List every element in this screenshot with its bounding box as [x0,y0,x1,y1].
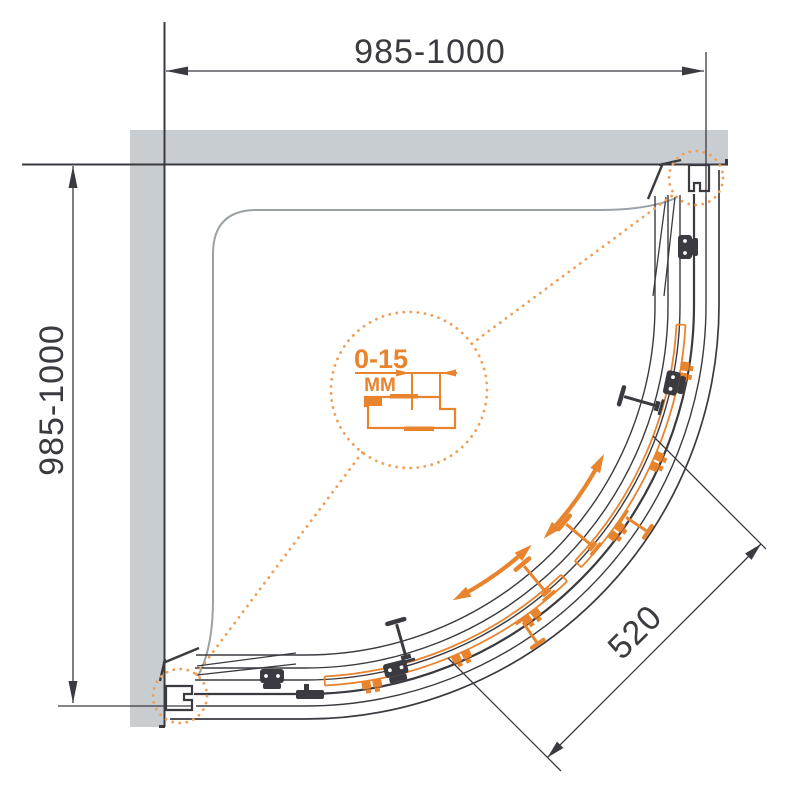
sliding-door-2 [325,575,568,686]
tray-inner-edge [198,198,676,676]
adjustment-range-value: 0-15 [354,344,408,374]
dimension-left-value: 985-1000 [33,324,71,476]
dimension-left: 985-1000 [33,166,192,706]
technical-drawing-page: 0-15 MM 985-1000 985-1000 [0,0,799,800]
adjustment-unit: MM [364,375,396,396]
dimension-entry-value: 520 [601,598,670,667]
adjustment-detail: 0-15 MM [354,344,457,431]
dim-arrow [682,67,704,76]
profile-section-bar [390,394,418,399]
dimension-diagonal: 520 [448,436,766,771]
dim-arrow [69,681,78,703]
callout-leader-top [472,194,675,344]
extension-line [448,658,561,771]
shower-enclosure-plan: 0-15 MM 985-1000 985-1000 [0,0,799,800]
extension-line [653,436,766,549]
dim-arrow [69,166,78,188]
frame-bracket [678,235,698,259]
detail-arrow-left [442,370,456,377]
profile-section-bar [404,427,434,432]
frame-bracket-small [304,684,309,692]
slide-arrow-1 [549,462,600,533]
wall-end-tick-right [725,159,728,165]
slide-arrow-2 [460,550,526,596]
wall-left [130,130,164,727]
fixed-panel-edges [197,197,675,675]
dim-arrow [166,67,188,76]
sliding-door-1 [575,325,686,568]
dimension-top-value: 985-1000 [354,33,506,71]
wall-end-tick-bottom [159,725,165,728]
detail-circle [331,312,487,468]
seal-strips [160,160,681,681]
callout-leader-bottom [196,453,362,675]
wall-top [130,130,728,164]
dimension-line [548,544,762,758]
frame-bracket [260,669,284,689]
frame-bracket-small [296,690,324,699]
profile-section-bar [366,398,382,406]
dimension-top: 985-1000 [166,33,706,196]
